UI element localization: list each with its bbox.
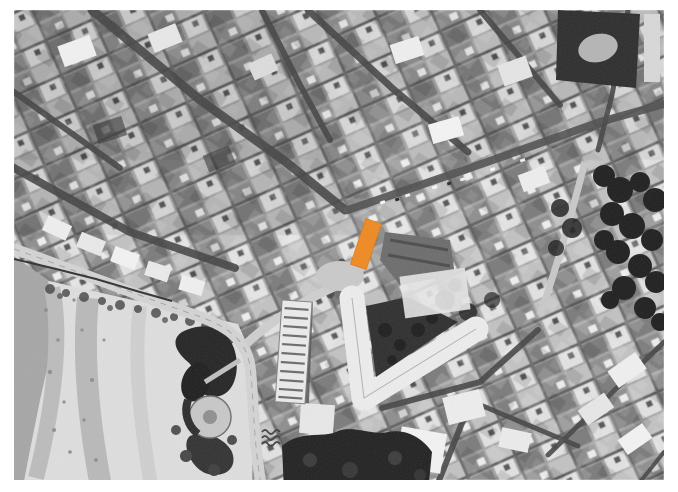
- screenshot-page: [0, 0, 678, 492]
- photo-grain: [14, 10, 664, 480]
- aerial-photo[interactable]: [0, 0, 678, 492]
